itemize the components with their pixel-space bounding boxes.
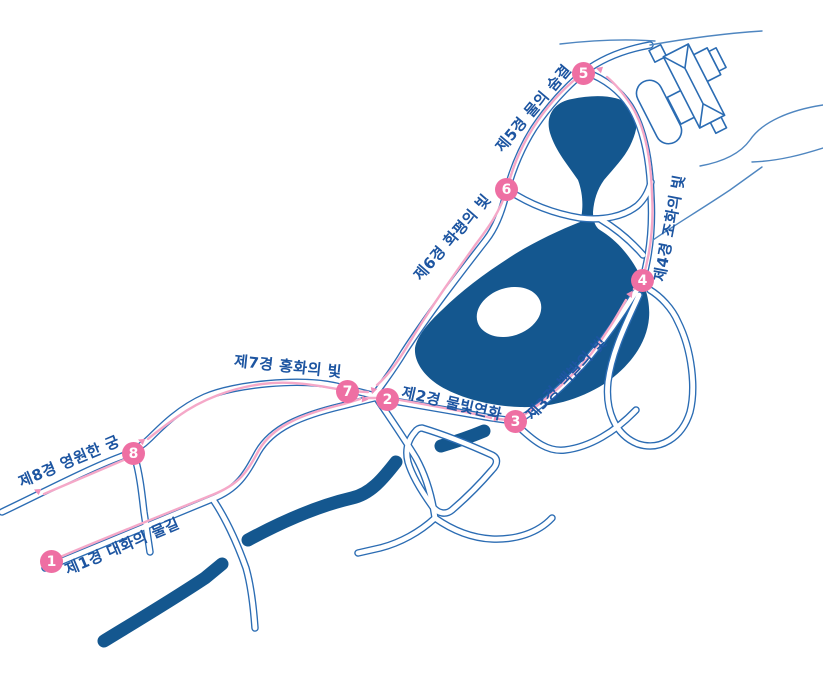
map-canvas — [0, 0, 823, 674]
scene-marker-7[interactable]: 7 — [336, 380, 359, 403]
scene-marker-4[interactable]: 4 — [631, 269, 654, 292]
scene-marker-8[interactable]: 8 — [122, 442, 145, 465]
scene-marker-2[interactable]: 2 — [376, 388, 399, 411]
scene-marker-1[interactable]: 1 — [40, 550, 63, 573]
scene-marker-5[interactable]: 5 — [572, 62, 595, 85]
scenic-route-map: 제1경 대화의 물길 제2경 물빛연화 제3경 백발의 빛 제4경 조화의 빛 … — [0, 0, 823, 674]
scene-marker-6[interactable]: 6 — [495, 178, 518, 201]
scene-marker-3[interactable]: 3 — [504, 410, 527, 433]
